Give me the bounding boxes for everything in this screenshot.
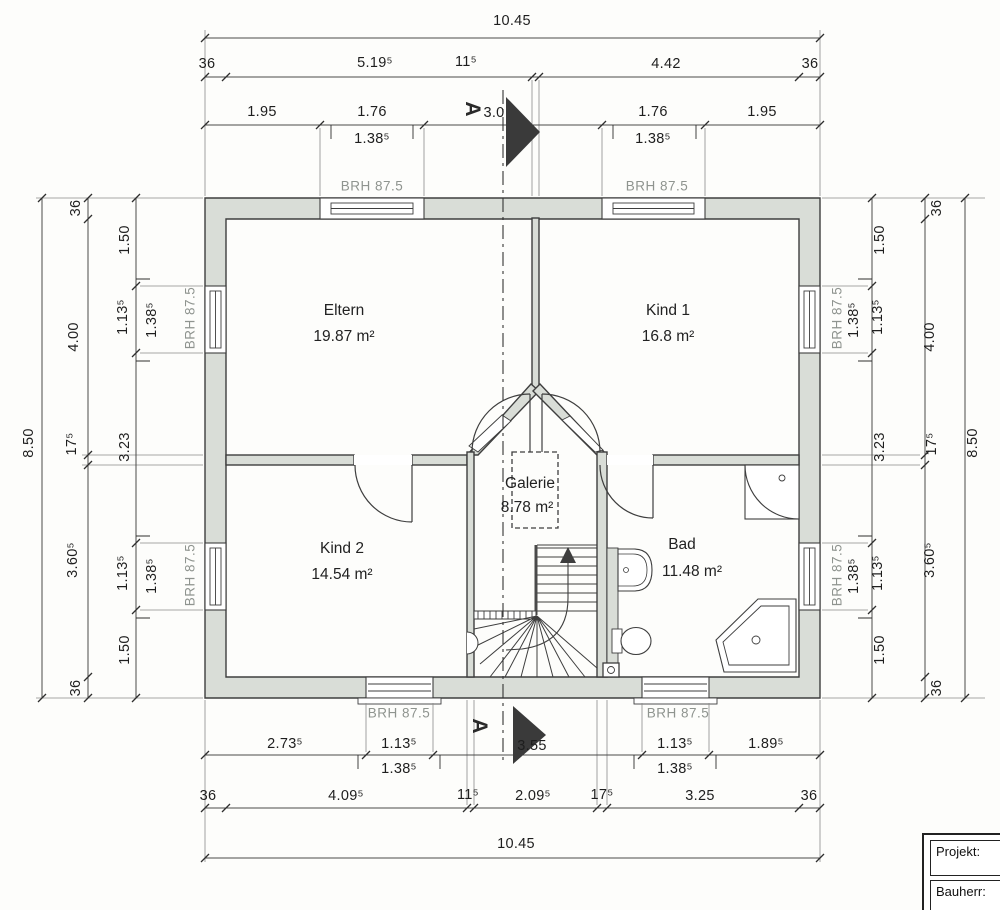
dim-right-in-1: 1.13⁵ <box>870 299 886 335</box>
dim-top-r2-3: 4.42 <box>651 56 680 72</box>
section-arrow-top <box>506 97 540 167</box>
brh-label-left-upper: BRH 87.5 <box>183 287 198 350</box>
dim-bot-sub-1: 1.38⁵ <box>657 761 693 777</box>
brh-label-right-upper: BRH 87.5 <box>830 287 845 350</box>
dim-bot-r2-0: 36 <box>200 788 217 804</box>
title-block-client: Bauherr: <box>930 880 1000 910</box>
dim-left-in-3: 1.13⁵ <box>115 555 131 591</box>
room-area-kind1: 16.8 m² <box>642 328 695 346</box>
brh-label-top-left: BRH 87.5 <box>341 179 404 194</box>
duct <box>603 663 619 677</box>
dim-bot-r1-1: 1.13⁵ <box>381 736 417 752</box>
room-area-bad: 11.48 m² <box>662 563 722 581</box>
dim-right-mid-0: 36 <box>929 200 945 217</box>
dim-left-in-4: 1.50 <box>117 635 133 664</box>
room-name-bad: Bad <box>668 536 696 554</box>
dim-bot-r2-6: 36 <box>801 788 818 804</box>
brh-label-bottom-right: BRH 87.5 <box>647 706 710 721</box>
dim-left-in-0: 1.50 <box>117 225 133 254</box>
dim-top-r3-3: 1.76 <box>638 104 667 120</box>
room-name-galerie: Galerie <box>505 475 555 493</box>
dim-top-r3-4: 1.95 <box>747 104 776 120</box>
staircase <box>467 545 597 677</box>
dim-left-mid-3: 3.60⁵ <box>65 542 81 578</box>
dim-left-mid-0: 36 <box>68 200 84 217</box>
dim-top-sub-1: 1.38⁵ <box>635 131 671 147</box>
dim-left-mid-4: 36 <box>68 680 84 697</box>
room-area-galerie: 8.78 m² <box>501 499 554 517</box>
dim-top-r2-4: 36 <box>802 56 819 72</box>
floor-plan-drawing <box>0 0 1000 910</box>
dim-bot-r2-1: 4.09⁵ <box>328 788 364 804</box>
brh-label-left-lower: BRH 87.5 <box>183 544 198 607</box>
dim-bot-sub-0: 1.38⁵ <box>381 761 417 777</box>
brh-label-right-lower: BRH 87.5 <box>830 544 845 607</box>
dim-bottom-total: 10.45 <box>497 836 535 852</box>
room-area-kind2: 14.54 m² <box>311 566 372 584</box>
room-area-eltern: 19.87 m² <box>313 328 374 346</box>
walls <box>205 198 820 698</box>
dim-bot-r1-4: 1.89⁵ <box>748 736 784 752</box>
dim-left-mid-2: 17⁵ <box>64 432 80 455</box>
dim-left-sub-0: 1.38⁵ <box>144 302 160 338</box>
dim-right-mid-3: 3.60⁵ <box>922 542 938 578</box>
dim-top-r3-0: 1.95 <box>247 104 276 120</box>
dim-top-r3-2: 3.0 <box>483 105 504 121</box>
dim-bot-r1-3: 1.13⁵ <box>657 736 693 752</box>
dim-right-in-3: 1.13⁵ <box>870 555 886 591</box>
dim-top-r2-2: 11⁵ <box>455 54 477 70</box>
dim-right-sub-1: 1.38⁵ <box>846 558 862 594</box>
dim-left-total: 8.50 <box>21 428 37 457</box>
toilet <box>621 628 651 655</box>
dim-left-sub-1: 1.38⁵ <box>144 558 160 594</box>
room-name-kind1: Kind 1 <box>646 302 690 320</box>
dim-right-mid-1: 4.00 <box>922 322 938 351</box>
dim-bot-r2-3: 2.09⁵ <box>515 788 551 804</box>
dim-right-mid-2: 17⁵ <box>924 432 940 455</box>
dim-bot-r2-4: 17⁵ <box>590 787 613 803</box>
dim-top-r3-1: 1.76 <box>357 104 386 120</box>
title-block-project: Projekt: <box>930 840 1000 876</box>
floor-plan-page: 10.45 36 5.19⁵ 11⁵ 4.42 36 1.95 1.76 3.0… <box>0 0 1000 910</box>
room-name-kind2: Kind 2 <box>320 540 364 558</box>
section-label-top: A <box>460 101 484 116</box>
section-label-bottom: A <box>467 718 491 733</box>
dim-bot-r1-2: 3.55 <box>517 738 546 754</box>
dim-left-in-1: 1.13⁵ <box>115 299 131 335</box>
dim-left-in-2: 3.23 <box>117 432 133 461</box>
dim-bot-r2-5: 3.25 <box>685 788 714 804</box>
dim-top-r2-1: 5.19⁵ <box>357 55 393 71</box>
brh-label-bottom-left: BRH 87.5 <box>368 706 431 721</box>
dim-right-in-4: 1.50 <box>872 635 888 664</box>
dim-top-total: 10.45 <box>493 13 531 29</box>
shower <box>745 465 799 519</box>
dim-left-mid-1: 4.00 <box>66 322 82 351</box>
dim-right-sub-0: 1.38⁵ <box>846 302 862 338</box>
title-block: Projekt: Bauherr: <box>922 833 1000 910</box>
dim-bot-r2-2: 11⁵ <box>457 787 479 803</box>
dim-right-in-2: 3.23 <box>872 432 888 461</box>
dim-right-total: 8.50 <box>965 428 981 457</box>
dim-top-r2-0: 36 <box>199 56 216 72</box>
brh-label-top-right: BRH 87.5 <box>626 179 689 194</box>
dim-right-mid-4: 36 <box>929 680 945 697</box>
dim-top-sub-0: 1.38⁵ <box>354 131 390 147</box>
dim-bot-r1-0: 2.73⁵ <box>267 736 303 752</box>
dim-right-in-0: 1.50 <box>872 225 888 254</box>
room-name-eltern: Eltern <box>324 302 365 320</box>
